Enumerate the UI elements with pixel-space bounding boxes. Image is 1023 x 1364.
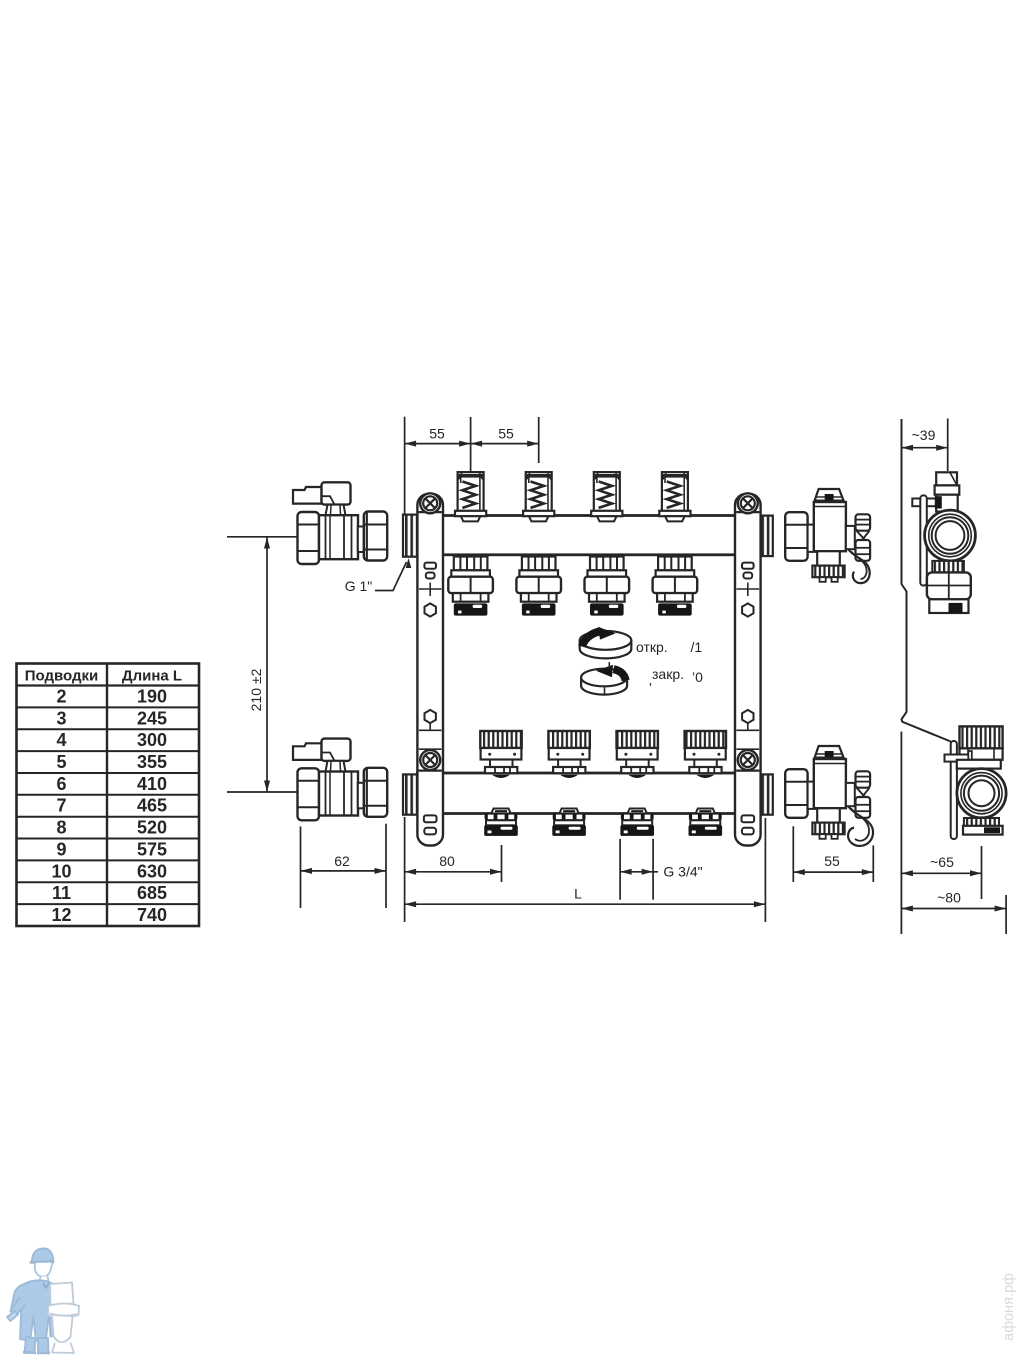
- svg-text:62: 62: [334, 853, 350, 869]
- svg-text:520: 520: [137, 818, 167, 838]
- svg-text:740: 740: [137, 905, 167, 925]
- svg-text:630: 630: [137, 861, 167, 881]
- svg-text:L: L: [574, 886, 582, 902]
- svg-text:,: ,: [649, 672, 653, 688]
- svg-text:55: 55: [498, 425, 514, 441]
- svg-text:откр.: откр.: [636, 639, 668, 655]
- svg-text:190: 190: [137, 686, 167, 706]
- svg-text:55: 55: [429, 425, 445, 441]
- svg-text:2: 2: [56, 686, 66, 706]
- svg-text:7: 7: [56, 796, 66, 816]
- svg-text:410: 410: [137, 774, 167, 794]
- svg-text:’0: ’0: [692, 669, 703, 685]
- svg-text:G 1": G 1": [345, 578, 373, 594]
- svg-text:6: 6: [56, 774, 66, 794]
- svg-text:~39: ~39: [912, 427, 936, 443]
- svg-text:575: 575: [137, 840, 167, 860]
- svg-text:закр.: закр.: [652, 666, 684, 682]
- svg-text:Длина L: Длина L: [122, 668, 182, 685]
- svg-text:9: 9: [56, 840, 66, 860]
- svg-text:11: 11: [52, 883, 71, 903]
- svg-text:210 ±2: 210 ±2: [248, 668, 264, 711]
- svg-text:55: 55: [824, 853, 840, 869]
- svg-text:~80: ~80: [937, 890, 961, 906]
- svg-text:3: 3: [56, 708, 66, 728]
- svg-text:5: 5: [56, 752, 66, 772]
- svg-text:300: 300: [137, 730, 167, 750]
- svg-text:/1: /1: [691, 639, 703, 655]
- svg-text:355: 355: [137, 752, 167, 772]
- svg-text:245: 245: [137, 708, 167, 728]
- svg-text:~65: ~65: [930, 854, 954, 870]
- svg-text:685: 685: [137, 883, 167, 903]
- svg-text:4: 4: [56, 730, 66, 750]
- svg-text:465: 465: [137, 796, 167, 816]
- svg-text:Подводки: Подводки: [25, 668, 99, 685]
- svg-text:80: 80: [439, 853, 455, 869]
- svg-text:8: 8: [56, 818, 66, 838]
- svg-text:G 3/4": G 3/4": [663, 864, 702, 880]
- svg-text:12: 12: [51, 905, 71, 925]
- svg-text:афоня.рф: афоня.рф: [1001, 1273, 1017, 1341]
- svg-text:10: 10: [51, 861, 71, 881]
